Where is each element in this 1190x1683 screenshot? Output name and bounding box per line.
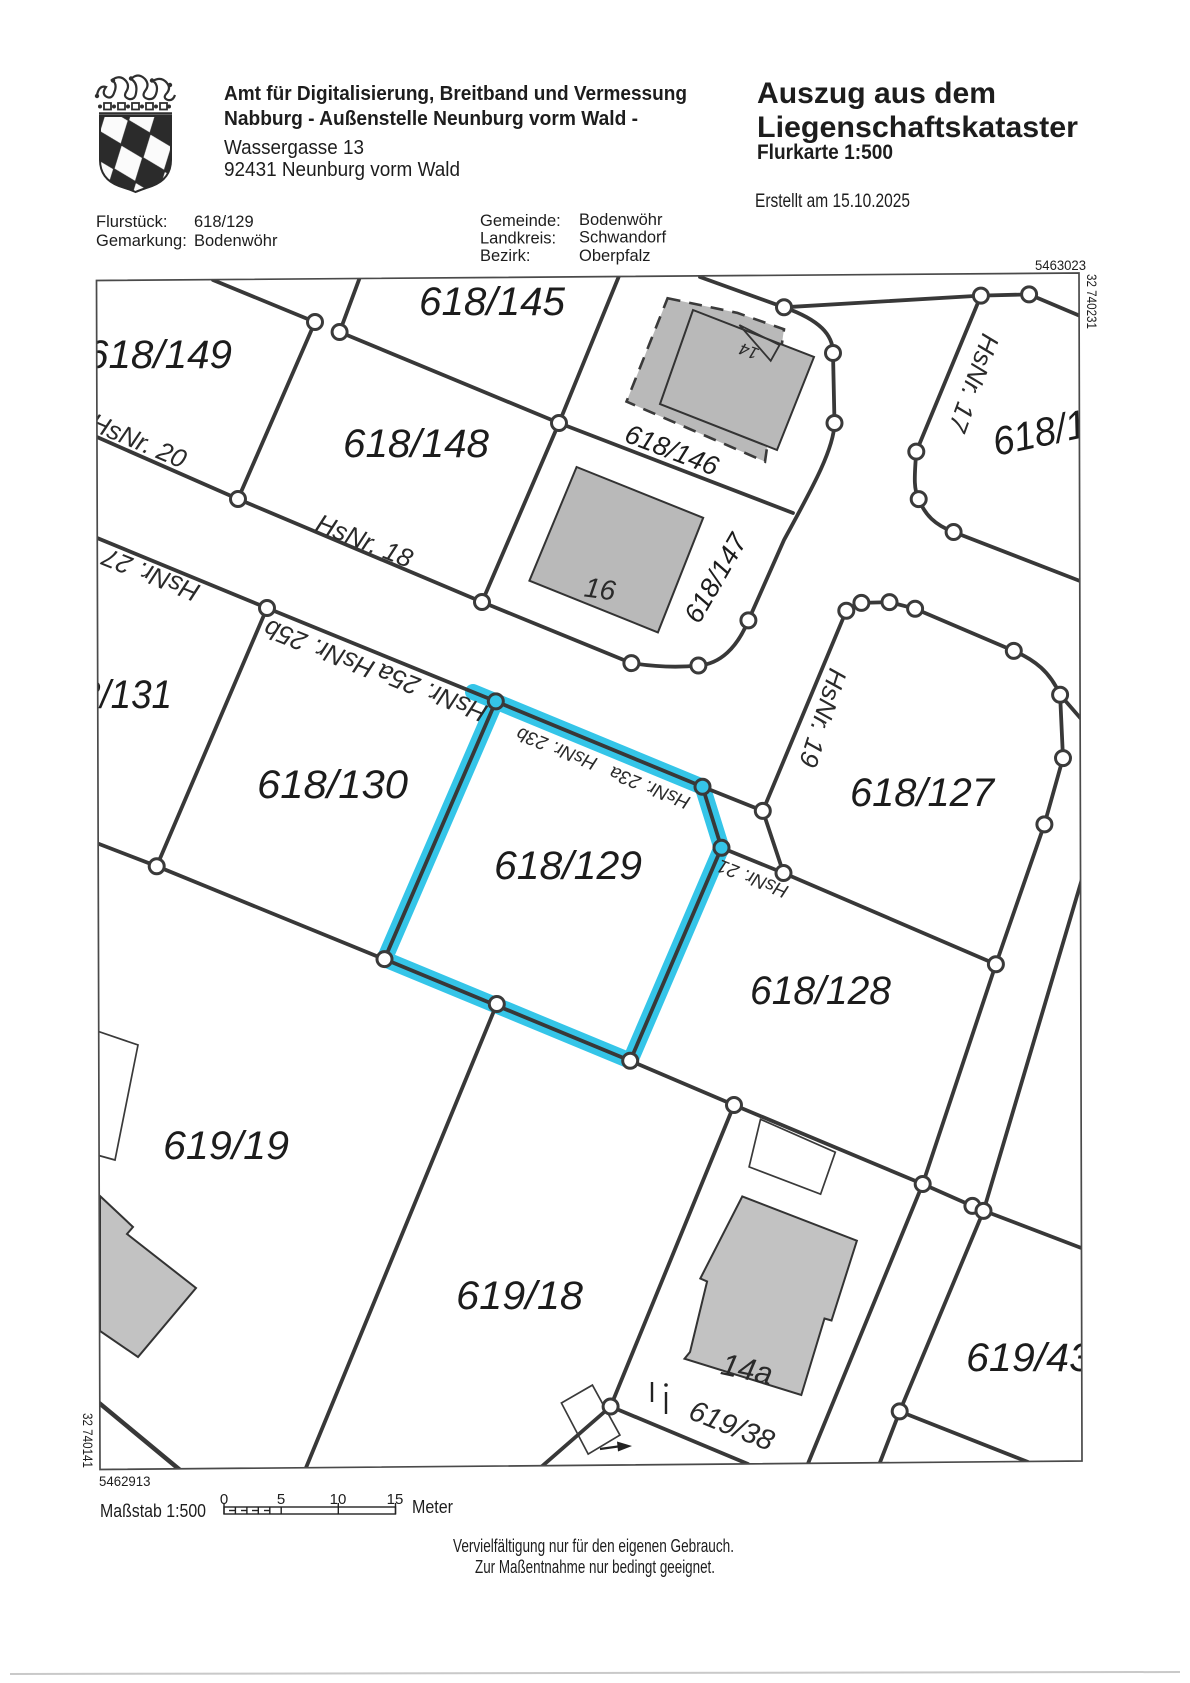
svg-text:618/128: 618/128	[750, 969, 892, 1013]
svg-text:Oberpfalz: Oberpfalz	[579, 247, 651, 265]
svg-text:Landkreis:: Landkreis:	[480, 230, 556, 248]
svg-text:Schwandorf: Schwandorf	[579, 229, 667, 247]
svg-text:Vervielfältigung nur für den e: Vervielfältigung nur für den eigenen Geb…	[453, 1536, 734, 1556]
svg-text:Bezirk:: Bezirk:	[480, 247, 530, 265]
svg-text:Gemeinde:: Gemeinde:	[480, 212, 561, 230]
svg-text:5463023: 5463023	[1035, 257, 1086, 273]
svg-text:5462913: 5462913	[99, 1473, 151, 1489]
svg-text:Flurstück:: Flurstück:	[96, 213, 168, 231]
svg-text:92431 Neunburg vorm Wald: 92431 Neunburg vorm Wald	[224, 159, 460, 181]
svg-text:Bodenwöhr: Bodenwöhr	[194, 232, 278, 250]
svg-text:618/129: 618/129	[494, 844, 642, 888]
svg-text:16: 16	[582, 571, 618, 606]
svg-text:10: 10	[330, 1491, 347, 1508]
svg-text:0: 0	[220, 1491, 228, 1508]
svg-text:Nabburg - Außenstelle Neunburg: Nabburg - Außenstelle Neunburg vorm Wald…	[224, 108, 638, 130]
svg-text:619/19: 619/19	[163, 1124, 289, 1168]
svg-text:618/127: 618/127	[850, 771, 996, 815]
svg-text:32 740141: 32 740141	[80, 1413, 95, 1468]
svg-text:618/148: 618/148	[343, 422, 490, 466]
svg-text:Flurkarte 1:500: Flurkarte 1:500	[757, 141, 893, 164]
svg-text:Wassergasse 13: Wassergasse 13	[224, 137, 364, 159]
svg-text:Auszug aus dem: Auszug aus dem	[757, 77, 996, 110]
svg-text:15: 15	[387, 1491, 404, 1508]
svg-text:619/43: 619/43	[966, 1336, 1092, 1380]
svg-text:618/130: 618/130	[257, 763, 408, 807]
svg-text:Amt für Digitalisierung, Breit: Amt für Digitalisierung, Breitband und V…	[224, 83, 687, 105]
svg-text:Maßstab 1:500: Maßstab 1:500	[100, 1501, 206, 1521]
svg-text:32 740231: 32 740231	[1084, 274, 1099, 329]
svg-text:Liegenschaftskataster: Liegenschaftskataster	[757, 111, 1078, 144]
svg-text:5: 5	[277, 1491, 285, 1508]
svg-text:Gemarkung:: Gemarkung:	[96, 232, 187, 250]
svg-text:Meter: Meter	[412, 1497, 453, 1517]
svg-text:618/129: 618/129	[194, 213, 254, 231]
svg-text:Bodenwöhr: Bodenwöhr	[579, 211, 663, 229]
svg-text:618/149: 618/149	[86, 333, 232, 377]
svg-text:Zur Maßentnahme nur bedingt ge: Zur Maßentnahme nur bedingt geeignet.	[475, 1557, 715, 1577]
svg-text:618/145: 618/145	[419, 280, 566, 324]
svg-text:619/18: 619/18	[456, 1274, 584, 1318]
svg-text:Erstellt am 15.10.2025: Erstellt am 15.10.2025	[755, 191, 910, 212]
